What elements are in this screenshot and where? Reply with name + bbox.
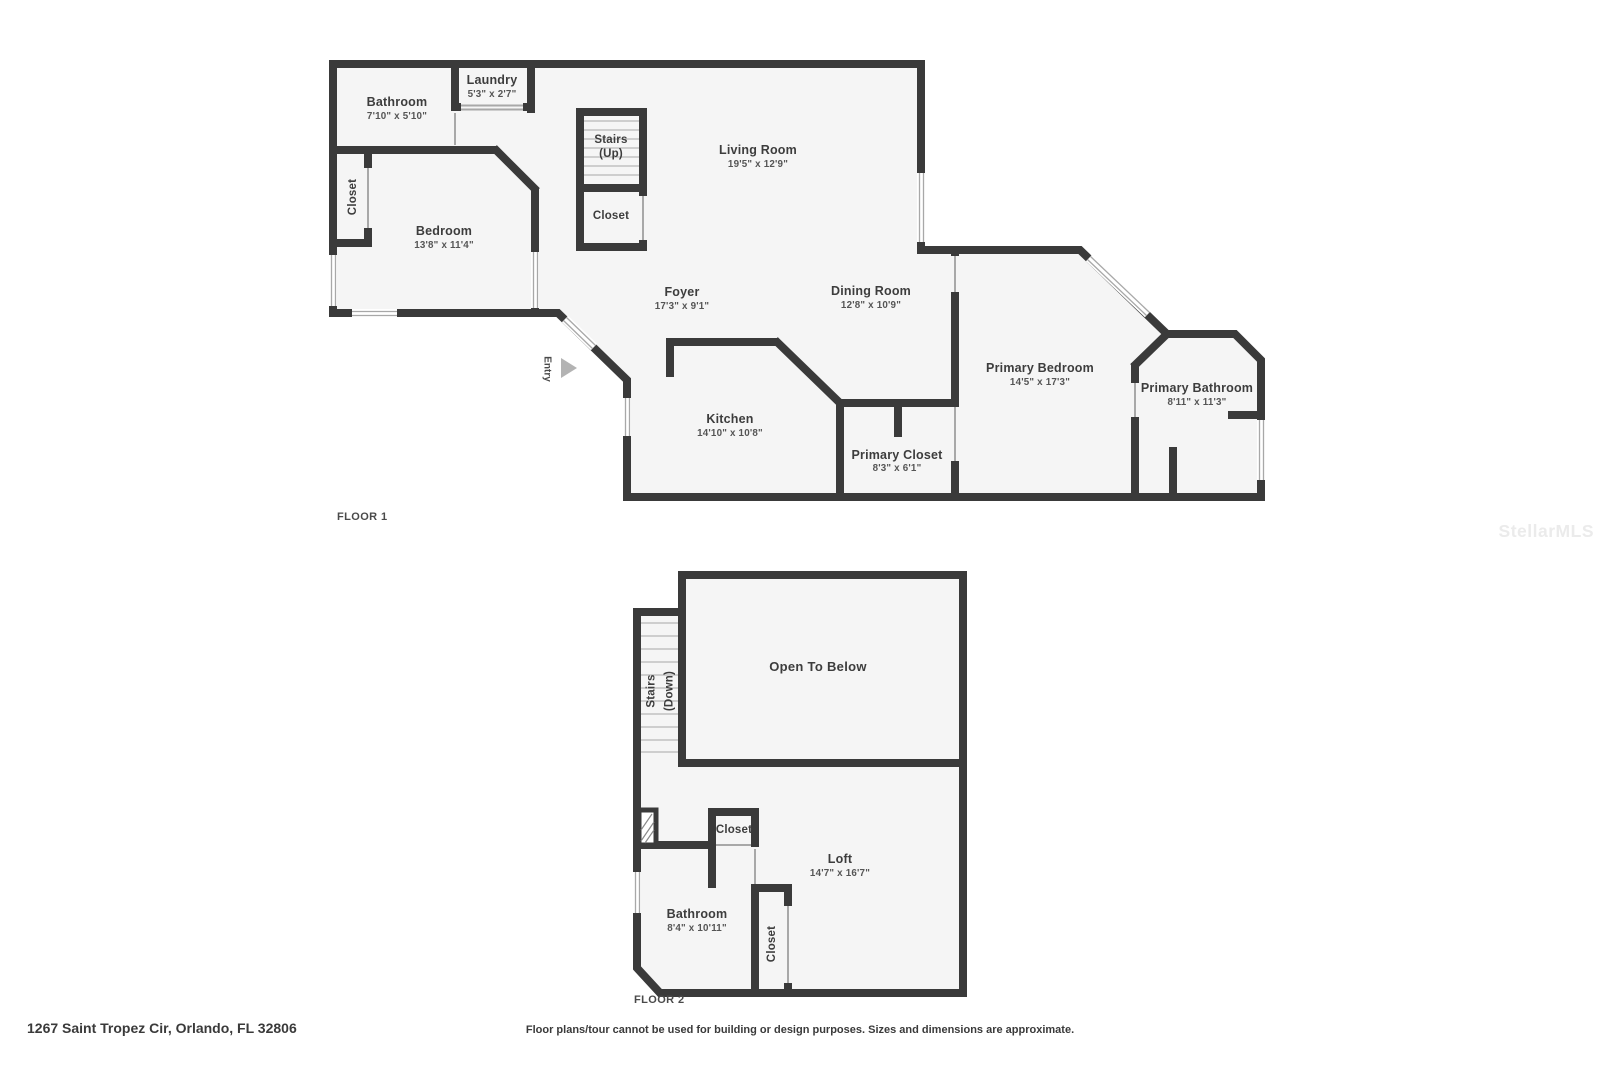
room-label-laundry: Laundry xyxy=(467,73,518,87)
room-dims-bathroom: 7'10" x 5'10" xyxy=(367,111,427,122)
room-label-bathroom2: Bathroom xyxy=(667,907,728,921)
room-dims-living-room: 19'5" x 12'9" xyxy=(728,159,788,170)
hatched-area xyxy=(639,810,656,845)
window-icon xyxy=(917,173,925,242)
room-label-foyer: Foyer xyxy=(664,285,699,299)
room-label-primary-closet: Primary Closet xyxy=(851,448,943,462)
room-dims-bathroom2: 8'4" x 10'11" xyxy=(667,923,727,934)
room-label-kitchen: Kitchen xyxy=(706,412,753,426)
floor1-label: FLOOR 1 xyxy=(337,511,387,523)
room-dims-laundry: 5'3" x 2'7" xyxy=(468,89,517,100)
stellar-mls-watermark: StellarMLS xyxy=(1499,521,1594,541)
room-label-stairs-down-sub: (Down) xyxy=(664,671,676,711)
room-label-stairs-up: Stairs xyxy=(594,134,627,146)
floor2-label: FLOOR 2 xyxy=(634,994,684,1006)
room-dims-bedroom: 13'8" x 11'4" xyxy=(414,240,474,251)
room-dims-primary-bathroom: 8'11" x 11'3" xyxy=(1167,397,1226,408)
room-label-stairs-closet: Closet xyxy=(593,210,629,222)
room-dims-foyer: 17'3" x 9'1" xyxy=(655,301,709,312)
room-label-living-room: Living Room xyxy=(719,143,797,157)
floor-plan-page: Bathroom 7'10" x 5'10" Laundry 5'3" x 2'… xyxy=(0,0,1600,1066)
room-dims-primary-closet: 8'3" x 6'1" xyxy=(873,463,922,474)
window-icon xyxy=(633,872,641,913)
floor-plan-drawing: Bathroom 7'10" x 5'10" Laundry 5'3" x 2'… xyxy=(0,0,1600,1066)
room-label-loft: Loft xyxy=(828,852,853,866)
room-dims-kitchen: 14'10" x 10'8" xyxy=(697,428,763,439)
window-icon xyxy=(623,398,631,436)
window-icon xyxy=(1257,420,1265,480)
floor1-exterior-walls xyxy=(333,64,1261,497)
room-dims-primary-bedroom: 14'5" x 17'3" xyxy=(1010,377,1070,388)
room-label-closet-tall: Closet xyxy=(766,926,778,962)
floor2-plan: Stairs (Down) Open To Below Closet Loft … xyxy=(633,575,963,1006)
floor1-plan: Bathroom 7'10" x 5'10" Laundry 5'3" x 2'… xyxy=(329,60,1265,523)
disclaimer-text: Floor plans/tour cannot be used for buil… xyxy=(526,1024,1074,1036)
room-label-closet-top: Closet xyxy=(716,824,752,836)
room-label-bathroom: Bathroom xyxy=(367,95,428,109)
room-dims-dining-room: 12'8" x 10'9" xyxy=(841,300,901,311)
room-label-bedroom-closet: Closet xyxy=(347,179,359,215)
room-label-primary-bathroom: Primary Bathroom xyxy=(1141,381,1253,395)
entry-arrow-icon xyxy=(561,358,577,378)
property-address: 1267 Saint Tropez Cir, Orlando, FL 32806 xyxy=(27,1020,297,1036)
room-label-stairs-down: Stairs xyxy=(646,674,658,707)
room-dims-loft: 14'7" x 16'7" xyxy=(810,868,870,879)
entry-label: Entry xyxy=(542,356,553,382)
open-to-below-label: Open To Below xyxy=(769,659,867,674)
room-label-dining-room: Dining Room xyxy=(831,284,911,298)
window-icon xyxy=(531,252,539,308)
room-label-bedroom: Bedroom xyxy=(416,224,472,238)
window-icon xyxy=(329,255,337,306)
window-icon xyxy=(352,309,397,317)
room-label-stairs-up-sub: (Up) xyxy=(599,148,623,160)
room-label-primary-bedroom: Primary Bedroom xyxy=(986,361,1094,375)
